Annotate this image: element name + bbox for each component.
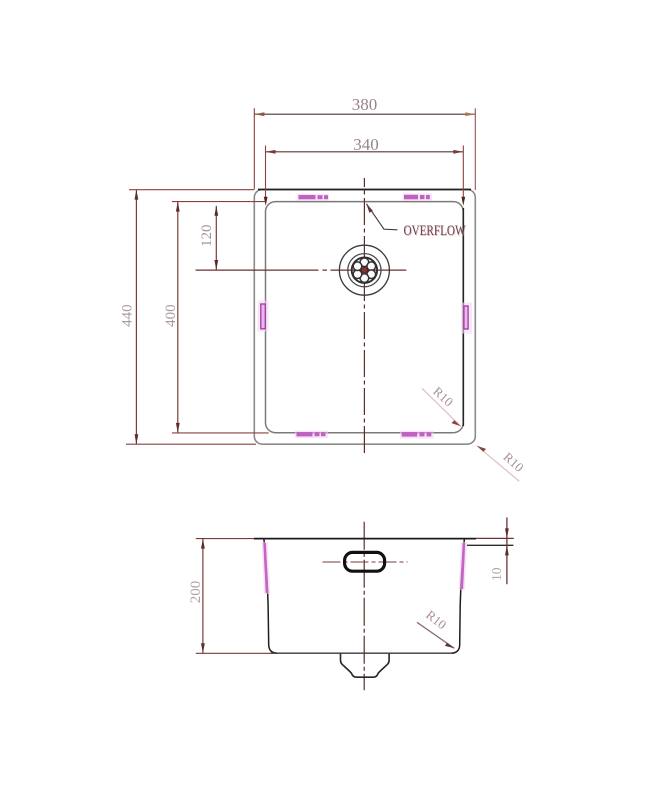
svg-text:10: 10 xyxy=(489,567,504,581)
svg-text:440: 440 xyxy=(120,304,136,327)
svg-text:340: 340 xyxy=(353,135,379,154)
svg-text:120: 120 xyxy=(199,225,215,248)
svg-text:400: 400 xyxy=(163,304,179,327)
svg-text:R10: R10 xyxy=(501,449,527,475)
svg-text:R10: R10 xyxy=(430,384,456,410)
svg-text:R10: R10 xyxy=(423,607,449,632)
svg-text:380: 380 xyxy=(352,95,378,114)
svg-text:200: 200 xyxy=(188,581,204,604)
svg-text:OVERFLOW: OVERFLOW xyxy=(404,223,466,239)
